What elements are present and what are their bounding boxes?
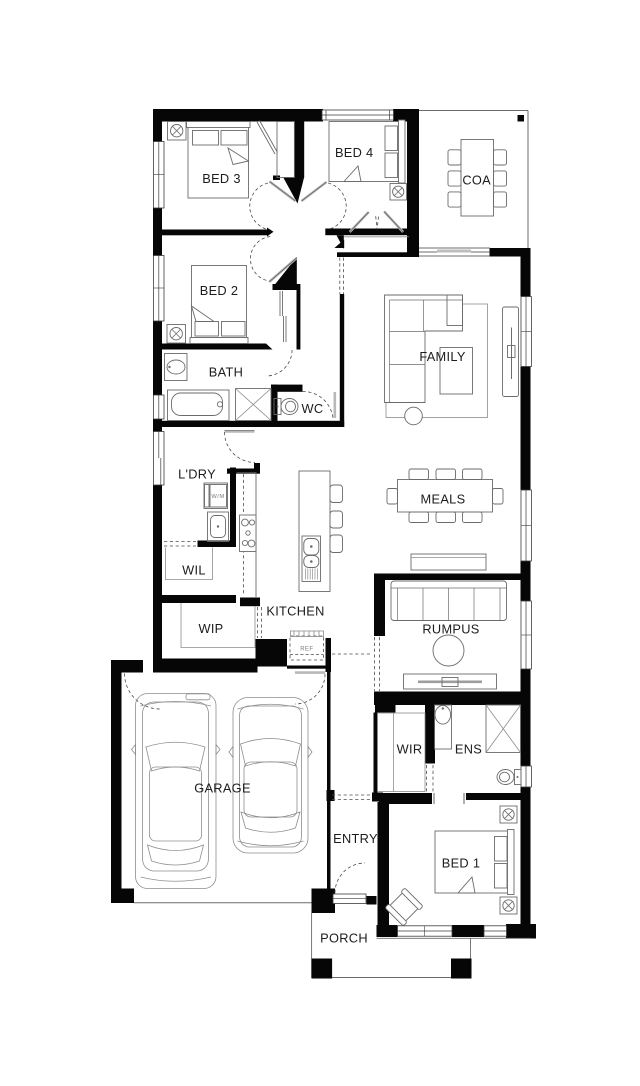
svg-text:WIL: WIL [182,563,206,578]
svg-text:WIP: WIP [198,621,223,636]
svg-text:RUMPUS: RUMPUS [422,622,479,637]
svg-text:COA: COA [462,173,491,188]
svg-text:REF: REF [300,647,313,653]
svg-text:BED 2: BED 2 [200,283,239,298]
svg-text:ENTRY: ENTRY [333,831,378,846]
svg-text:WIR: WIR [397,742,423,757]
svg-text:BATH: BATH [209,365,243,380]
svg-text:GARAGE: GARAGE [194,781,251,796]
svg-text:BED 4: BED 4 [335,145,374,160]
svg-text:PORCH: PORCH [320,931,368,946]
svg-text:MEALS: MEALS [421,492,466,507]
svg-text:KITCHEN: KITCHEN [266,604,324,619]
svg-text:L'DRY: L'DRY [178,467,216,482]
svg-text:ENS: ENS [455,742,482,757]
svg-text:W/M: W/M [211,494,225,500]
svg-text:BED 3: BED 3 [202,171,241,186]
svg-text:WC: WC [302,401,324,416]
svg-text:FAMILY: FAMILY [419,349,466,364]
svg-text:BED 1: BED 1 [442,856,481,871]
